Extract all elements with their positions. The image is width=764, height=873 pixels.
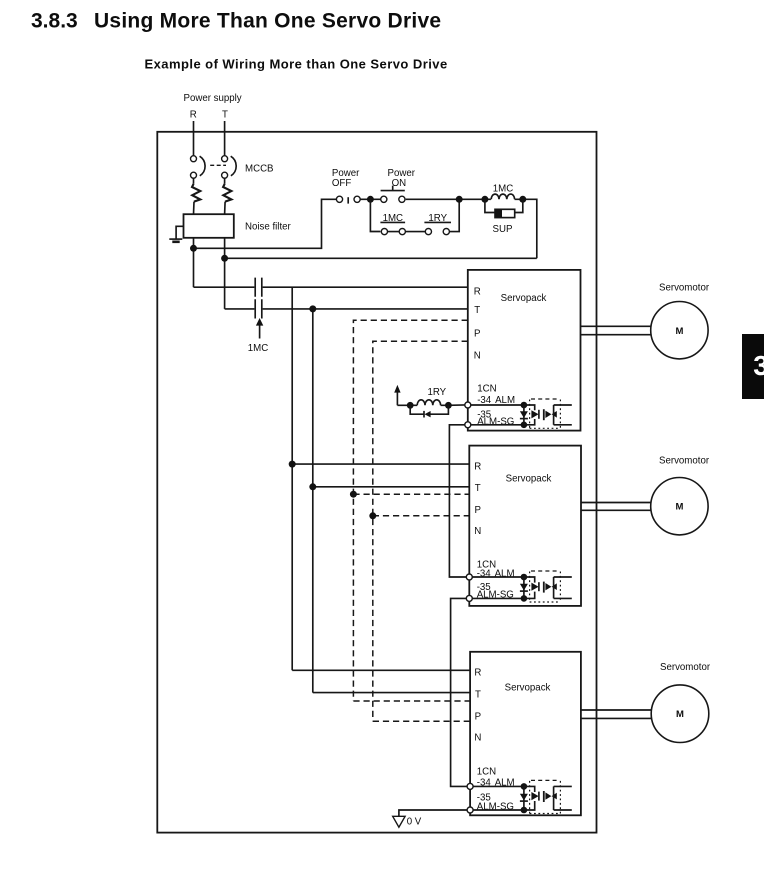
svg-text:T: T (475, 483, 481, 494)
svg-text:P: P (475, 711, 481, 722)
svg-text:P: P (474, 505, 480, 516)
svg-text:M: M (675, 502, 683, 513)
svg-text:1CN: 1CN (477, 384, 496, 395)
svg-text:T: T (222, 110, 228, 121)
svg-text:Servomotor: Servomotor (659, 282, 710, 293)
svg-text:N: N (474, 351, 481, 362)
svg-text:T: T (475, 689, 481, 700)
svg-text:1MC: 1MC (493, 183, 513, 194)
svg-text:MCCB: MCCB (245, 164, 274, 175)
svg-text:ON: ON (392, 178, 407, 189)
svg-text:R: R (474, 461, 481, 472)
svg-text:Servopack: Servopack (505, 683, 551, 694)
svg-text:Servopack: Servopack (506, 474, 552, 485)
svg-text:P: P (474, 329, 480, 340)
svg-text:3.8.3: 3.8.3 (31, 10, 78, 33)
svg-text:Servopack: Servopack (501, 293, 547, 304)
svg-text:R: R (474, 668, 481, 679)
svg-text:Servomotor: Servomotor (659, 456, 710, 467)
svg-text:Servomotor: Servomotor (660, 662, 711, 673)
svg-text:Example of Wiring More than On: Example of Wiring More than One Servo Dr… (145, 56, 448, 71)
svg-text:Power supply: Power supply (184, 93, 242, 104)
svg-text:R: R (474, 287, 481, 298)
svg-text:1CN: 1CN (477, 767, 496, 778)
svg-text:R: R (190, 110, 197, 121)
svg-text:N: N (474, 526, 481, 537)
svg-text:N: N (474, 733, 481, 744)
svg-text:T: T (474, 305, 480, 316)
svg-text:Noise filter: Noise filter (245, 222, 292, 233)
svg-text:1MC: 1MC (248, 343, 268, 354)
svg-text:1RY: 1RY (427, 387, 446, 398)
svg-text:Using More Than One Servo Driv: Using More Than One Servo Drive (94, 10, 441, 33)
svg-text:3: 3 (753, 350, 764, 381)
svg-text:OFF: OFF (332, 178, 351, 189)
svg-text:M: M (676, 709, 684, 720)
svg-text:SUP: SUP (493, 224, 513, 235)
svg-text:ALM-SG: ALM-SG (477, 417, 514, 428)
svg-text:0 V: 0 V (407, 817, 422, 828)
svg-text:M: M (675, 326, 683, 337)
